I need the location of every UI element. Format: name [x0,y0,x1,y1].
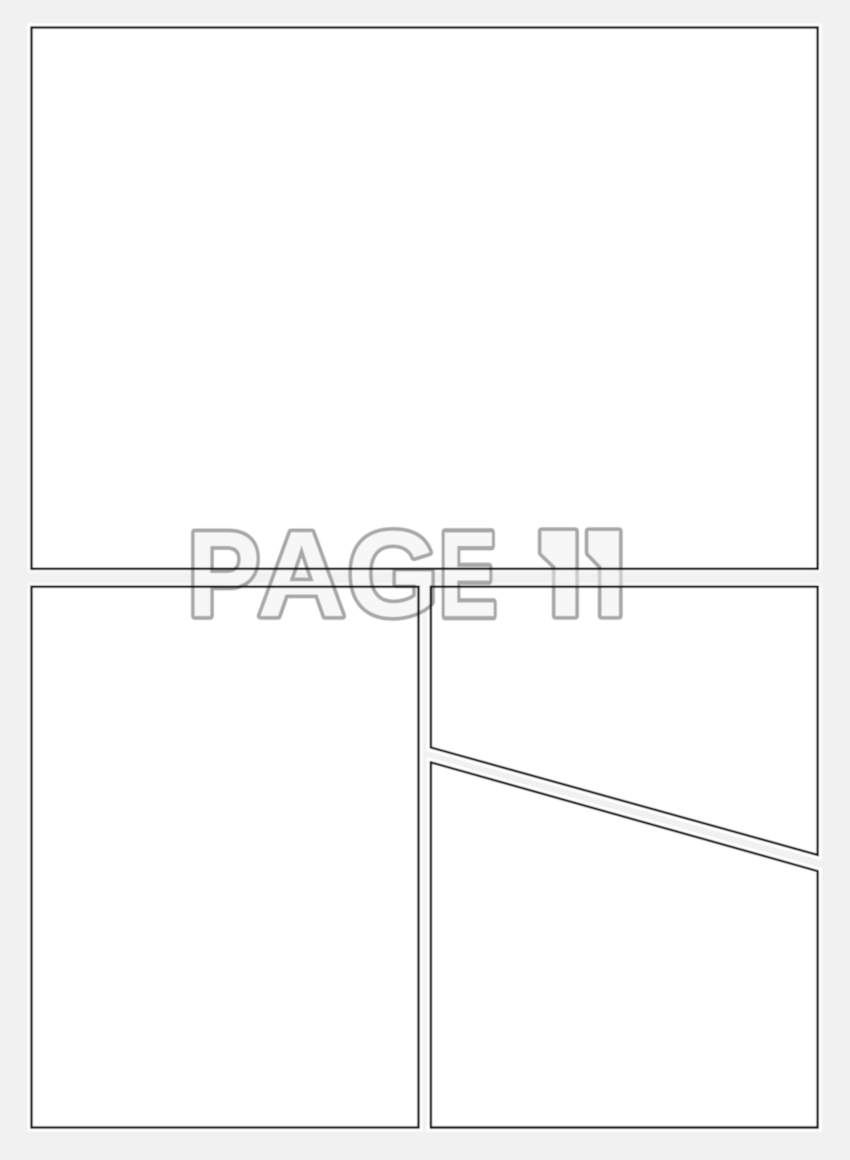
svg-text:G: G [347,507,438,642]
svg-text:A: A [257,506,345,642]
svg-text:E: E [439,507,497,643]
svg-text:P: P [187,506,260,643]
